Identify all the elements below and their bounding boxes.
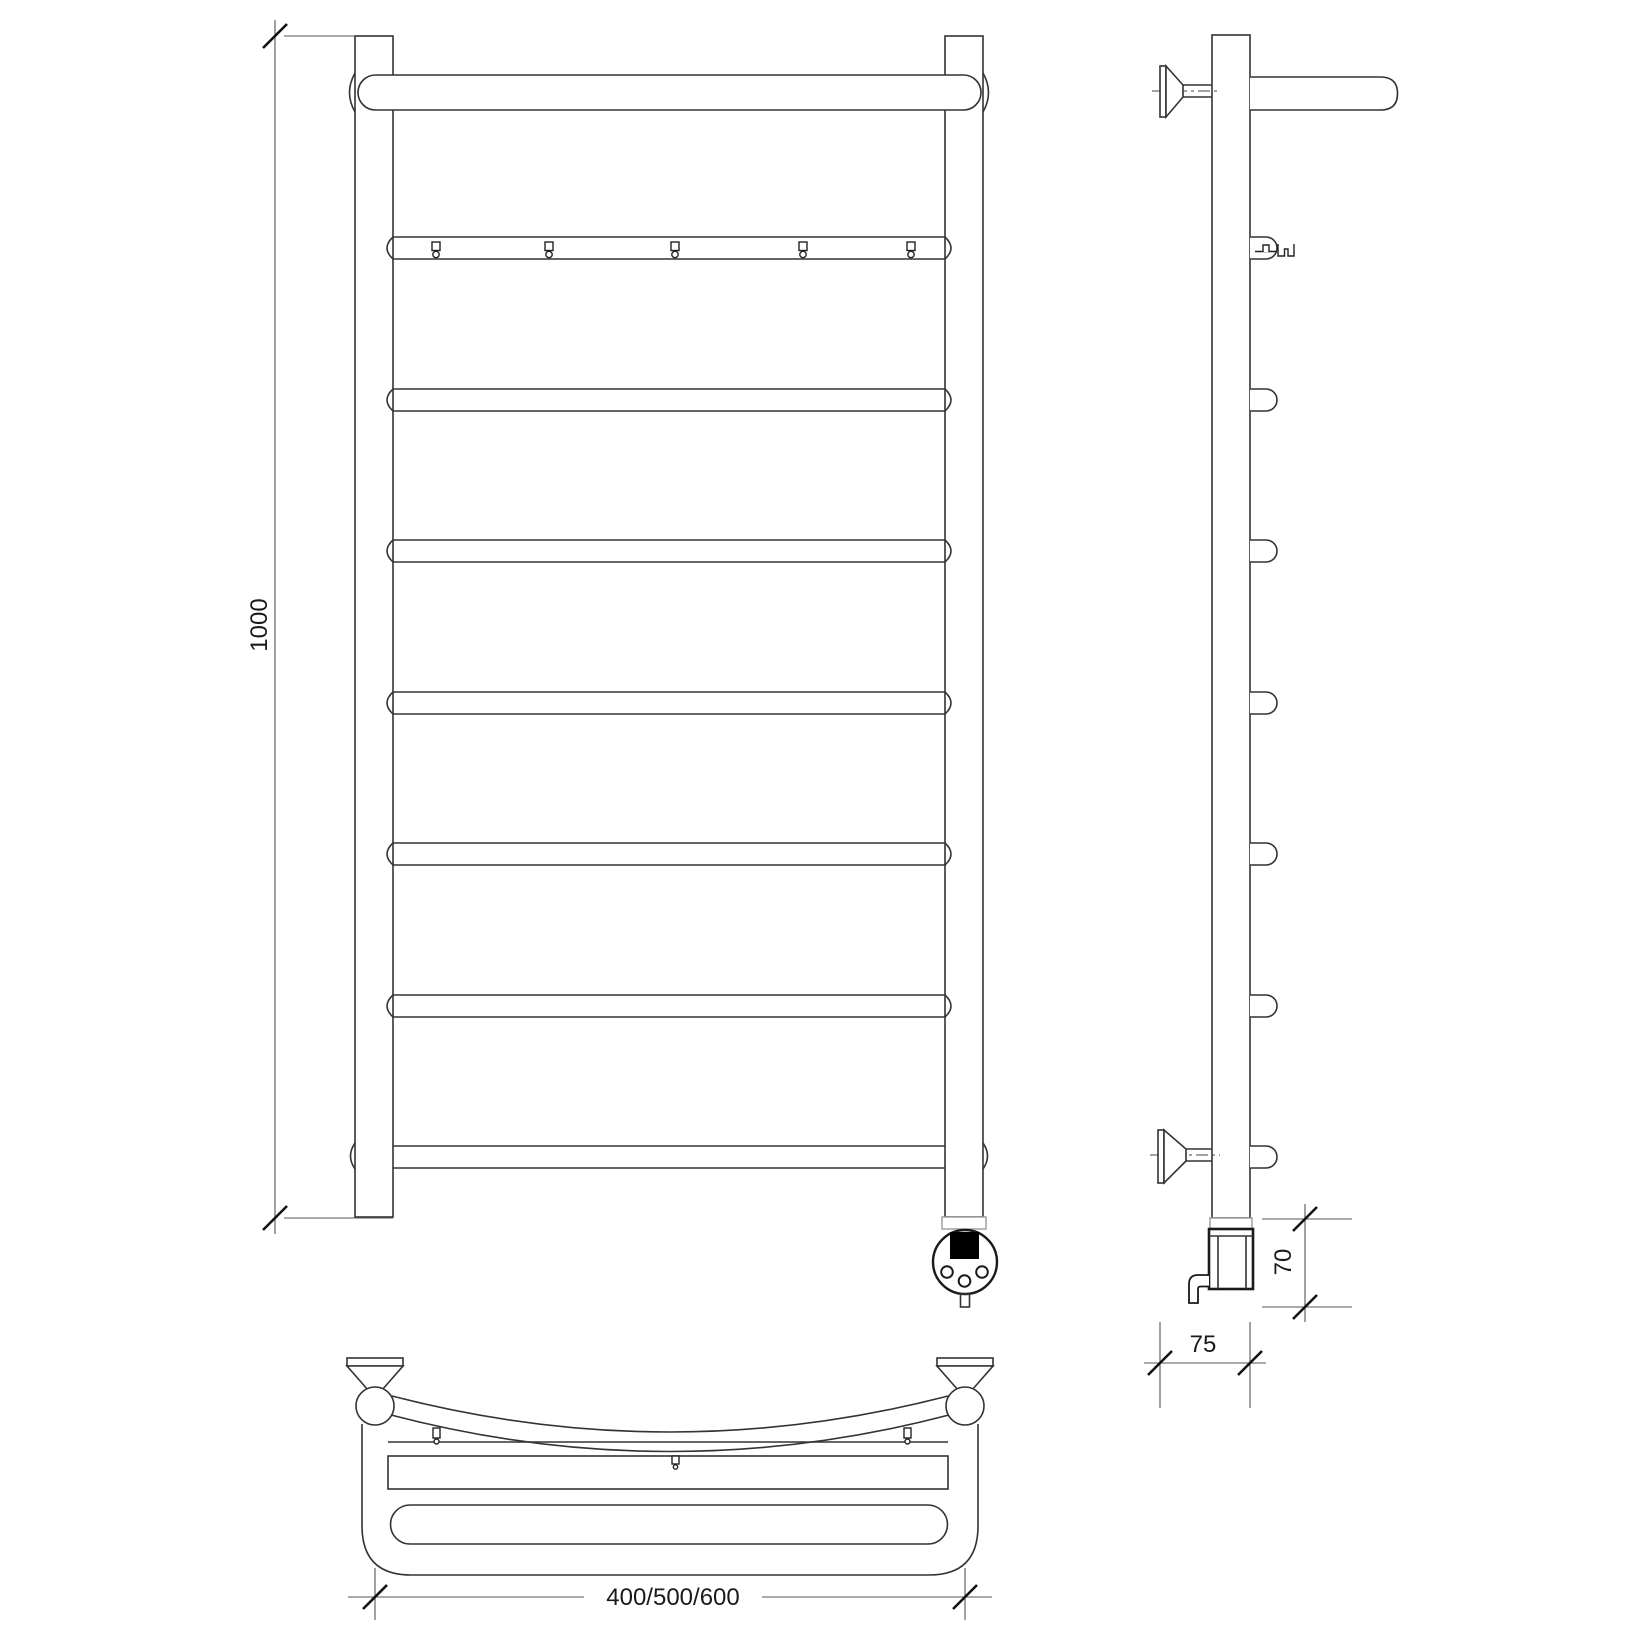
rung (387, 540, 951, 562)
dimension-label-height: 1000 (246, 598, 273, 651)
wall-bracket-top (1152, 66, 1220, 117)
bracket-cone (1164, 1130, 1186, 1183)
dimension-element-height: 70 (1262, 1204, 1352, 1322)
bracket-cone (1166, 66, 1183, 117)
weld-seam-arc (350, 73, 356, 112)
top-hook-clip (433, 1428, 440, 1444)
side-top-rail (1250, 77, 1398, 110)
element-collar (1210, 1218, 1252, 1229)
post-ball-left (356, 1387, 394, 1425)
technical-drawing-canvas: 1000 (0, 0, 1649, 1649)
hanger-hook (799, 242, 807, 258)
controller-button (976, 1266, 988, 1278)
controller-button (959, 1275, 971, 1287)
towel-rail-technical-drawing: 1000 (0, 0, 1649, 1649)
controller-collar (942, 1217, 986, 1229)
front-hanger-hooks (432, 242, 915, 258)
hanger-hook (545, 242, 553, 258)
top-hook-clip (904, 1428, 911, 1444)
bracket-wall-plate (1158, 1130, 1164, 1183)
front-left-post (355, 36, 393, 1217)
bracket-wall-plate (1160, 66, 1166, 117)
rungs-stack-box (388, 1456, 948, 1489)
top-view: 400/500/600 (347, 1358, 993, 1620)
top-hook-clip (672, 1456, 679, 1469)
rung (387, 843, 951, 865)
dimension-label-element-height: 70 (1270, 1249, 1297, 1276)
hanger-hook (432, 242, 440, 258)
rung-bottom (351, 1143, 988, 1169)
hanger-hook (671, 242, 679, 258)
bowed-rail-band (391, 1396, 949, 1452)
wall-bracket-bottom (1150, 1130, 1220, 1183)
controller-display (950, 1232, 979, 1259)
thermostat-controller (933, 1217, 997, 1307)
side-rung-stubs (1250, 237, 1277, 1168)
rung-stub (1250, 995, 1277, 1017)
rung-stub (1250, 692, 1277, 714)
rung-stub (1250, 1146, 1277, 1168)
controller-stub (961, 1294, 970, 1307)
dimension-label-width: 400/500/600 (606, 1584, 739, 1611)
power-cable-elbow (1189, 1275, 1209, 1303)
rung-stub (1250, 843, 1277, 865)
side-post (1212, 35, 1250, 1218)
rung (387, 995, 951, 1017)
weld-seam-arc (983, 73, 989, 112)
rung-stub (1250, 389, 1277, 411)
rung (387, 692, 951, 714)
hanger-hook (907, 242, 915, 258)
rung (387, 389, 951, 411)
post-ball-right (946, 1387, 984, 1425)
shelf-outer-hoop (362, 1424, 978, 1575)
front-right-post (945, 36, 983, 1217)
front-top-rail (358, 75, 981, 110)
side-view: 70 75 (1144, 35, 1398, 1408)
controller-button (941, 1266, 953, 1278)
dimension-label-depth: 75 (1190, 1331, 1217, 1358)
front-view: 1000 (246, 20, 997, 1307)
rung-stub (1250, 540, 1277, 562)
front-rungs (351, 237, 988, 1169)
heating-element-housing (1189, 1218, 1253, 1303)
dimension-wall-depth: 75 (1144, 1322, 1266, 1408)
shelf-inner-band (391, 1505, 948, 1544)
rung (387, 237, 951, 259)
